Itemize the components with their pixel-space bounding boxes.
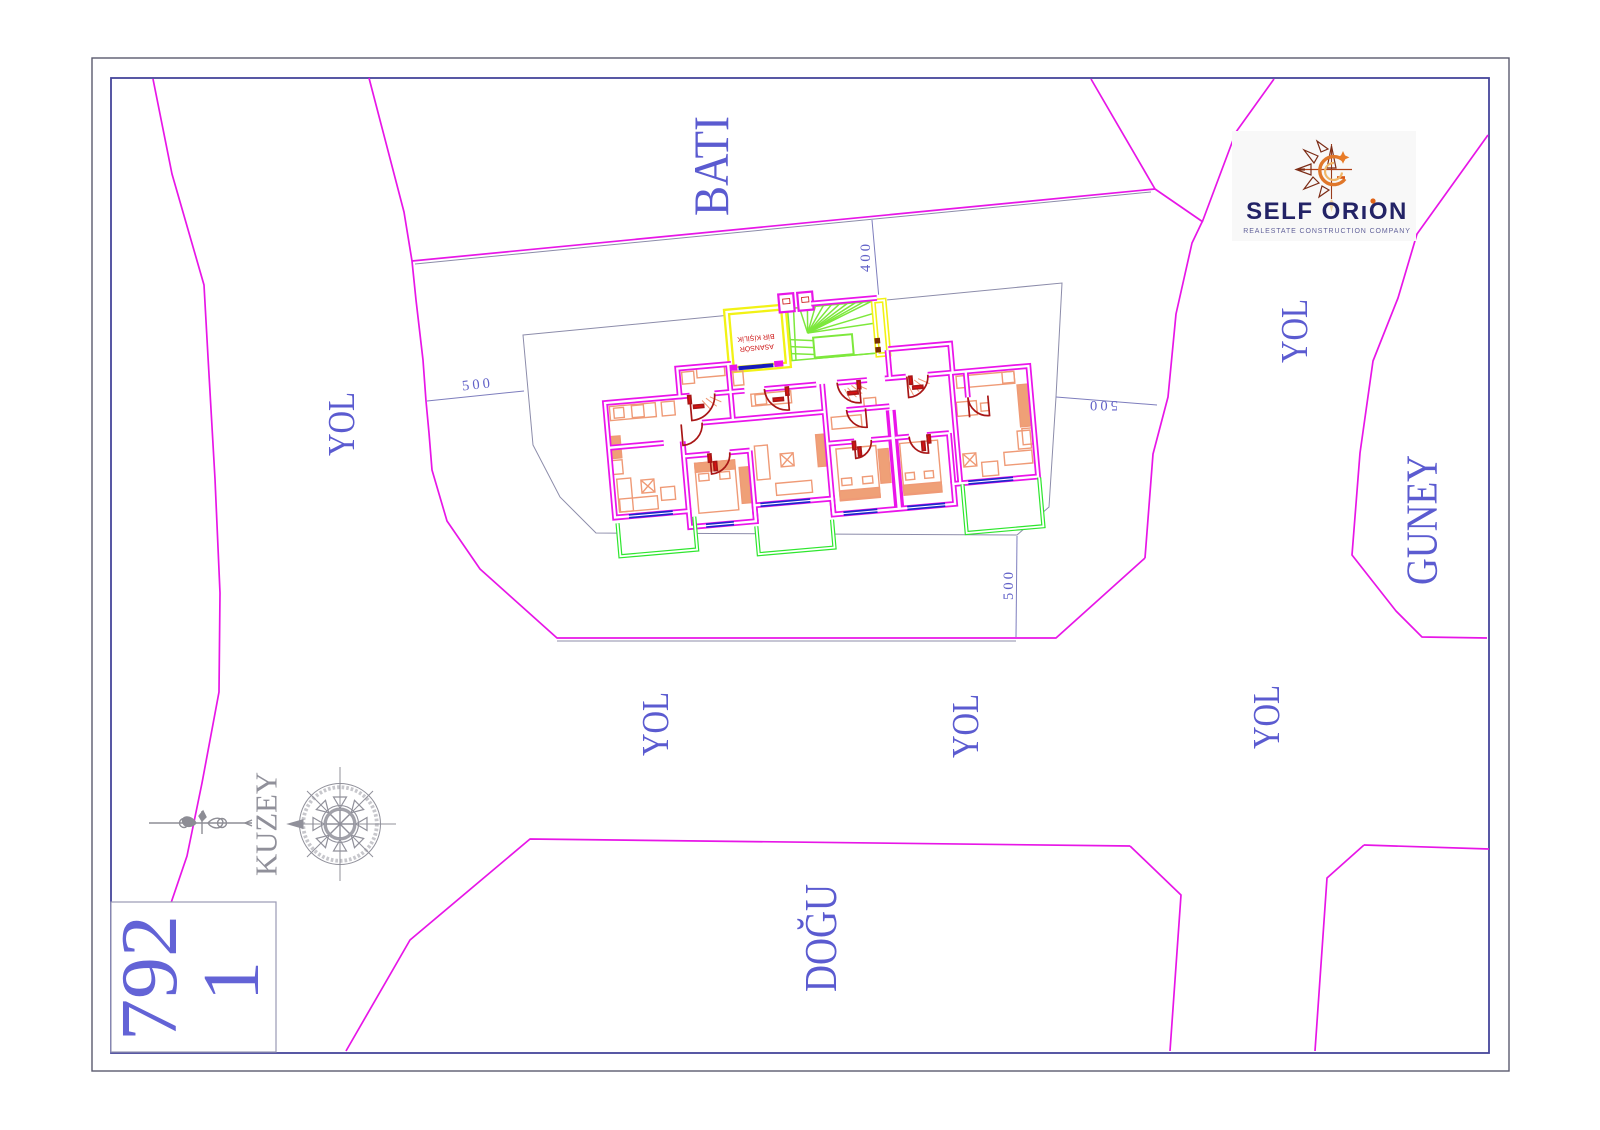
svg-text:GUNEY: GUNEY xyxy=(1398,455,1447,585)
svg-text:REALESTATE CONSTRUCTION COMPAN: REALESTATE CONSTRUCTION COMPANY xyxy=(1243,228,1411,235)
svg-text:BATI: BATI xyxy=(683,116,739,216)
svg-text:DOĞU: DOĞU xyxy=(796,884,846,992)
svg-text:500: 500 xyxy=(1090,397,1118,413)
svg-text:500: 500 xyxy=(461,376,491,395)
svg-text:400: 400 xyxy=(858,244,874,272)
svg-text:1: 1 xyxy=(188,961,276,1001)
svg-text:YOL: YOL xyxy=(1246,685,1288,749)
svg-text:792: 792 xyxy=(106,915,194,1041)
svg-text:YOL: YOL xyxy=(321,392,363,456)
svg-text:YOL: YOL xyxy=(1274,299,1316,363)
svg-text:YOL: YOL xyxy=(945,694,987,758)
svg-text:KUZEY: KUZEY xyxy=(249,772,284,876)
svg-text:500: 500 xyxy=(1001,572,1017,600)
svg-text:YOL: YOL xyxy=(635,692,677,756)
svg-text:SELF ORıON: SELF ORıON xyxy=(1246,198,1408,225)
